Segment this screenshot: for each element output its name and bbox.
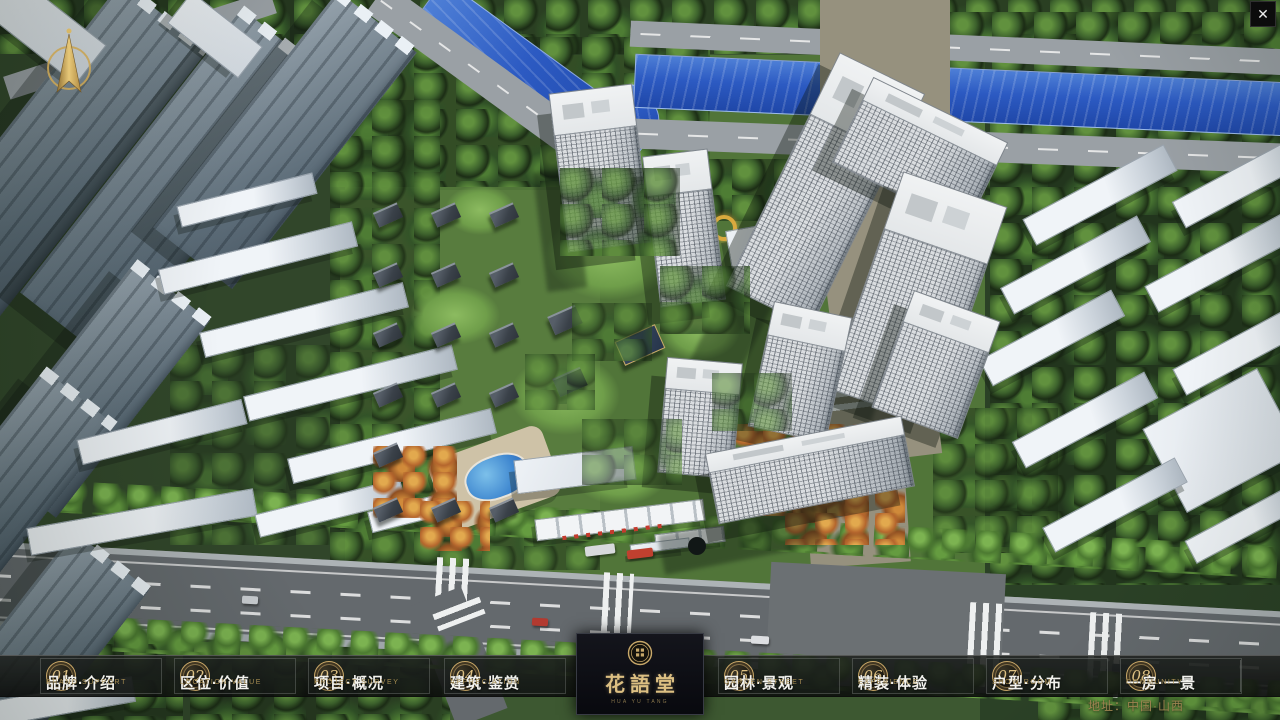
- nav-item-subtitle: BRAND SUPPORT: [46, 679, 127, 686]
- nav-item-views[interactable]: 08 一房·一景COMMUNITY: [1120, 658, 1242, 694]
- canopy-trees: [560, 168, 680, 256]
- nav-item-landscape[interactable]: 05 园林·景观GARDEN STREET: [718, 658, 840, 694]
- nav-item-subtitle: APPRECIATION: [450, 679, 521, 686]
- car: [532, 618, 548, 627]
- car: [242, 596, 258, 605]
- compass-north-icon: [34, 26, 104, 106]
- nav-item-location[interactable]: 02 区位·价值LOCATION VALUE: [174, 658, 296, 694]
- car: [751, 636, 769, 645]
- canopy-trees: [712, 373, 792, 431]
- nav-item-brand[interactable]: 01 品牌·介绍BRAND SUPPORT: [40, 658, 162, 694]
- canopy-trees: [572, 303, 652, 361]
- nav-item-subtitle: PROJECT SURVEY: [314, 679, 400, 686]
- project-tagline: HUA YU TANG: [611, 699, 669, 705]
- project-logo[interactable]: 花語堂 HUA YU TANG: [576, 633, 704, 715]
- nav-item-architecture[interactable]: 04 建筑·鉴赏APPRECIATION: [444, 658, 566, 694]
- canopy-trees: [525, 354, 595, 410]
- project-address: 地址：中国·山西: [1088, 697, 1184, 714]
- canopy-trees: [660, 266, 750, 334]
- canopy-trees: [582, 419, 682, 485]
- nav-item-subtitle: GARDEN STREET: [724, 679, 804, 686]
- aerial-masterplan-render: [0, 0, 1280, 720]
- nav-item-subtitle: EXPERIENCE: [858, 679, 919, 686]
- nav-item-project[interactable]: 03 项目·概况PROJECT SURVEY: [308, 658, 430, 694]
- nav-separator: [1240, 660, 1241, 692]
- nav-item-interior[interactable]: 06 精装·体验EXPERIENCE: [852, 658, 974, 694]
- nav-item-subtitle: SHOW ROOM: [992, 679, 1052, 686]
- nav-item-subtitle: COMMUNITY: [1126, 679, 1184, 686]
- close-icon[interactable]: ✕: [1250, 1, 1276, 27]
- nav-item-floorplans[interactable]: 07 户型·分布SHOW ROOM: [986, 658, 1108, 694]
- sales-presentation-window: ✕ 01 品牌·介绍BRAND SUPPORT 02 区位·价值LOCATION…: [0, 0, 1280, 720]
- logo-seal-icon: [627, 640, 653, 666]
- project-name: 花語堂: [600, 668, 680, 697]
- nav-item-subtitle: LOCATION VALUE: [180, 679, 262, 686]
